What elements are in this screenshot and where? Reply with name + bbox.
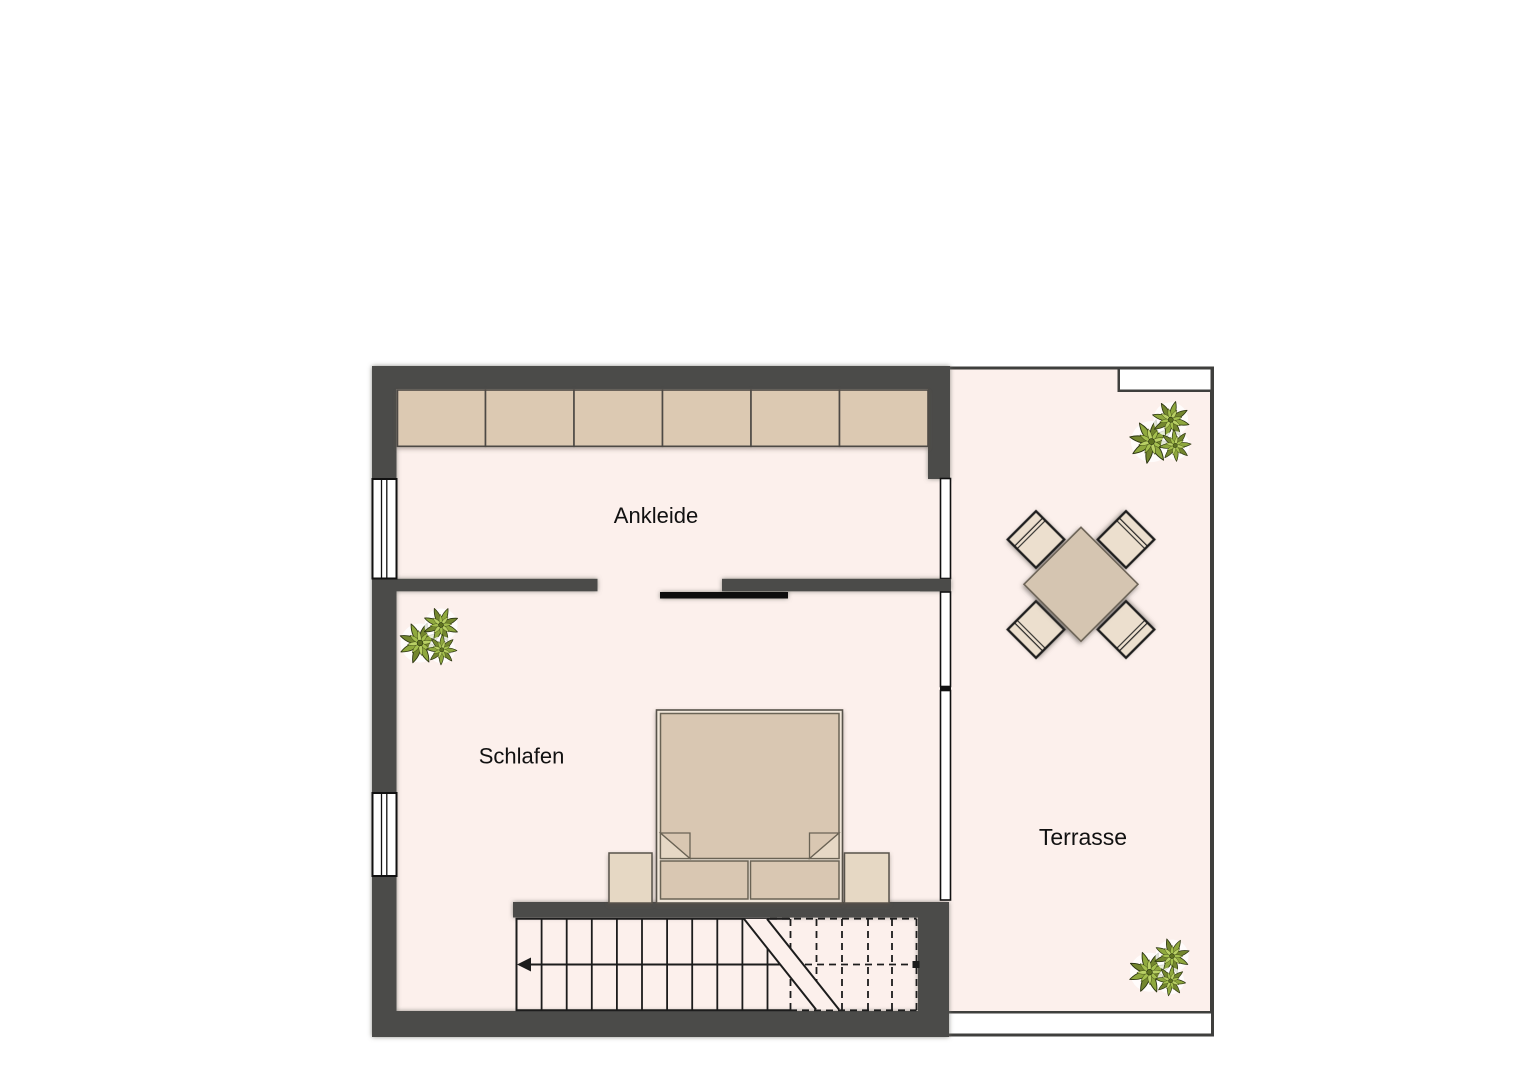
svg-text:Schlafen: Schlafen [479,744,565,769]
svg-text:Ankleide: Ankleide [614,503,698,528]
svg-text:Terrasse: Terrasse [1039,824,1127,850]
